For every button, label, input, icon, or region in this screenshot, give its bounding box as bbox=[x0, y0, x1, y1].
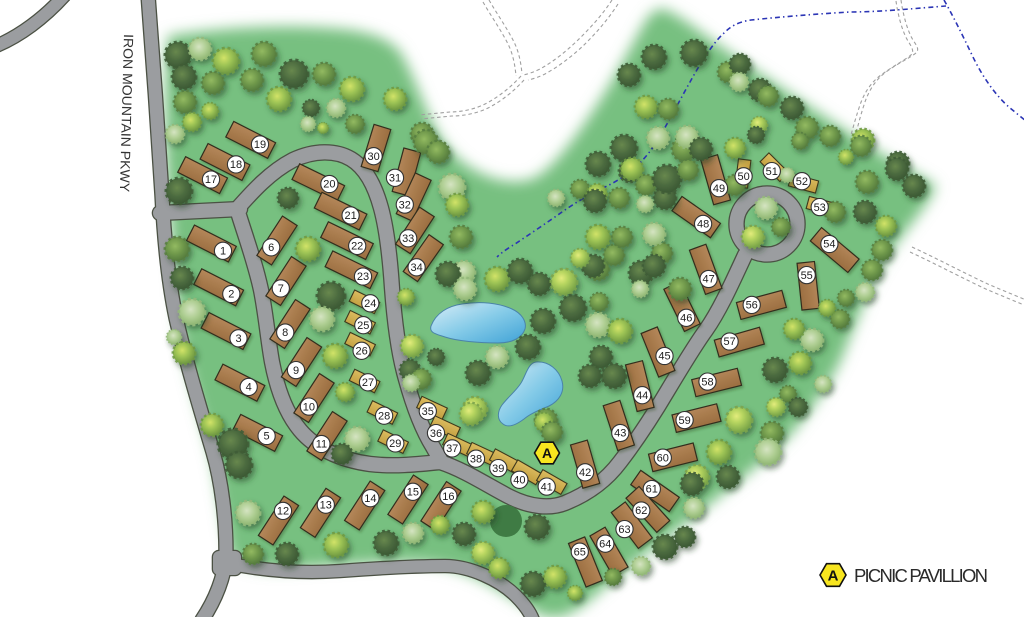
svg-text:25: 25 bbox=[357, 320, 369, 332]
svg-text:62: 62 bbox=[635, 505, 647, 517]
svg-text:50: 50 bbox=[737, 171, 749, 183]
svg-text:28: 28 bbox=[378, 410, 390, 422]
svg-text:48: 48 bbox=[697, 219, 709, 231]
svg-text:47: 47 bbox=[702, 274, 714, 286]
svg-text:26: 26 bbox=[355, 346, 367, 358]
svg-text:7: 7 bbox=[278, 283, 284, 295]
svg-text:58: 58 bbox=[701, 376, 713, 388]
svg-text:23: 23 bbox=[357, 271, 369, 283]
svg-text:1: 1 bbox=[220, 246, 226, 258]
svg-text:52: 52 bbox=[796, 176, 808, 188]
svg-text:46: 46 bbox=[680, 313, 692, 325]
svg-text:30: 30 bbox=[367, 151, 379, 163]
svg-text:A: A bbox=[828, 568, 839, 585]
svg-text:14: 14 bbox=[364, 493, 376, 505]
svg-text:15: 15 bbox=[407, 487, 419, 499]
svg-text:42: 42 bbox=[579, 467, 591, 479]
svg-text:63: 63 bbox=[618, 524, 630, 536]
svg-text:2: 2 bbox=[228, 289, 234, 301]
svg-text:4: 4 bbox=[246, 382, 252, 394]
svg-text:35: 35 bbox=[422, 406, 434, 418]
svg-text:20: 20 bbox=[323, 179, 335, 191]
svg-text:34: 34 bbox=[410, 262, 422, 274]
svg-text:IRON MOUNTAIN PKWY: IRON MOUNTAIN PKWY bbox=[117, 34, 136, 192]
svg-text:65: 65 bbox=[574, 546, 586, 558]
svg-text:22: 22 bbox=[351, 241, 363, 253]
svg-text:11: 11 bbox=[316, 439, 327, 451]
svg-text:61: 61 bbox=[646, 484, 658, 496]
svg-text:45: 45 bbox=[658, 351, 670, 363]
svg-text:32: 32 bbox=[399, 199, 411, 211]
svg-text:40: 40 bbox=[513, 475, 525, 487]
svg-text:PICNIC PAVILLION: PICNIC PAVILLION bbox=[854, 565, 988, 586]
svg-text:9: 9 bbox=[293, 365, 299, 377]
svg-text:12: 12 bbox=[277, 506, 289, 518]
svg-text:5: 5 bbox=[264, 431, 270, 443]
svg-text:39: 39 bbox=[492, 463, 504, 475]
svg-text:57: 57 bbox=[723, 336, 735, 348]
svg-text:6: 6 bbox=[268, 242, 274, 254]
svg-text:27: 27 bbox=[362, 377, 374, 389]
svg-text:41: 41 bbox=[541, 481, 553, 493]
svg-text:36: 36 bbox=[430, 428, 442, 440]
svg-text:18: 18 bbox=[230, 159, 242, 171]
svg-text:53: 53 bbox=[814, 202, 826, 214]
svg-text:59: 59 bbox=[678, 415, 690, 427]
svg-text:29: 29 bbox=[389, 438, 401, 450]
svg-text:17: 17 bbox=[205, 174, 217, 186]
svg-text:21: 21 bbox=[344, 210, 356, 222]
svg-text:54: 54 bbox=[823, 239, 835, 251]
svg-text:A: A bbox=[542, 445, 552, 461]
svg-text:24: 24 bbox=[364, 298, 376, 310]
svg-text:19: 19 bbox=[254, 139, 266, 151]
svg-text:31: 31 bbox=[389, 173, 401, 185]
svg-text:51: 51 bbox=[766, 166, 778, 178]
svg-text:38: 38 bbox=[470, 453, 482, 465]
svg-text:44: 44 bbox=[636, 390, 648, 402]
svg-text:33: 33 bbox=[402, 233, 414, 245]
svg-text:43: 43 bbox=[614, 428, 626, 440]
svg-text:56: 56 bbox=[746, 300, 758, 312]
svg-text:49: 49 bbox=[713, 183, 725, 195]
svg-text:8: 8 bbox=[282, 327, 288, 339]
svg-text:55: 55 bbox=[801, 270, 813, 282]
svg-text:16: 16 bbox=[442, 491, 454, 503]
svg-text:3: 3 bbox=[235, 333, 241, 345]
svg-text:13: 13 bbox=[320, 499, 332, 511]
svg-text:37: 37 bbox=[446, 443, 458, 455]
svg-text:60: 60 bbox=[657, 452, 669, 464]
svg-text:10: 10 bbox=[303, 401, 315, 413]
svg-text:64: 64 bbox=[599, 538, 611, 550]
